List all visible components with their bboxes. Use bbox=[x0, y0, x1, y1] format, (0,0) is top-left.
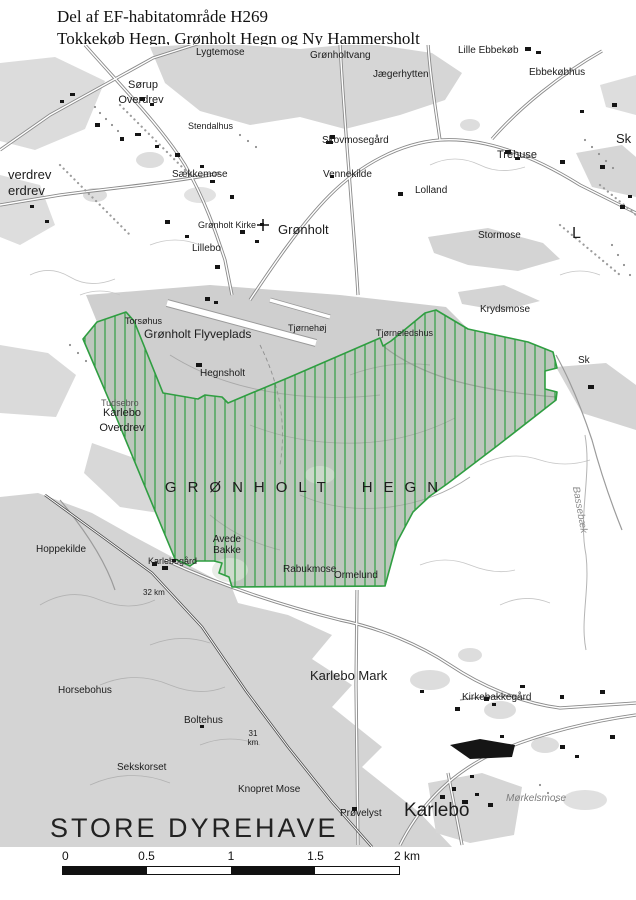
map-label: Karlebo Mark bbox=[310, 669, 387, 682]
map-label: Stendalhus bbox=[188, 122, 233, 131]
scale-bar-segments bbox=[62, 866, 400, 875]
map-label: STORE DYREHAVE bbox=[50, 815, 339, 842]
map-label: Torsøhus bbox=[125, 317, 162, 326]
map-label: Avede bbox=[213, 535, 241, 545]
scale-tick: 1.5 bbox=[307, 849, 324, 863]
map-labels-layer: LygtemoseGrønholtvangLille EbbekøbJægerh… bbox=[0, 45, 636, 847]
map-label: Knopret Mose bbox=[238, 785, 300, 795]
map-label: Hegnsholt bbox=[200, 369, 245, 379]
map-label: Lolland bbox=[415, 186, 447, 196]
map-label: Kirkebakkegård bbox=[462, 693, 531, 703]
map-label: Sk bbox=[616, 132, 631, 145]
map-label: Sækkemose bbox=[172, 170, 228, 180]
map-label: Prøvelyst bbox=[340, 809, 382, 819]
map-label: Rabukmose bbox=[283, 565, 336, 575]
map-label: Overdrev bbox=[99, 423, 144, 434]
map-label: km bbox=[248, 739, 259, 747]
map-label: Tjørneledshus bbox=[376, 329, 433, 338]
map-label: Stormose bbox=[478, 231, 521, 241]
scale-tick: 0.5 bbox=[138, 849, 155, 863]
map-label: Skovmosegård bbox=[322, 136, 389, 146]
map-label: Sk bbox=[578, 356, 590, 366]
map-label: Trehuse bbox=[497, 150, 537, 161]
map-label: Horsebohus bbox=[58, 686, 112, 696]
map-label: Sekskorset bbox=[117, 763, 166, 773]
scale-segment bbox=[63, 867, 147, 874]
map-label: GRØNHOLT HEGN bbox=[165, 480, 449, 495]
map-label: erdrev bbox=[8, 184, 45, 197]
map-label: 31 bbox=[249, 730, 258, 738]
map-label: Lygtemose bbox=[196, 48, 245, 58]
map-label: Bassebæk bbox=[570, 486, 588, 534]
map-label: Grønholt Flyveplads bbox=[144, 328, 251, 340]
map-label: Grønholt bbox=[278, 223, 329, 236]
map-label: Karlebogård bbox=[148, 557, 197, 566]
scale-tick: 2 km bbox=[394, 849, 420, 863]
scale-tick: 1 bbox=[228, 849, 235, 863]
map-label: Lillebo bbox=[192, 244, 221, 254]
map-label: Karlebo bbox=[103, 408, 141, 419]
map-title: Del af EF-habitatområde H269 Tokkekøb He… bbox=[57, 6, 420, 50]
map-label: Mørkelsmose bbox=[506, 794, 566, 804]
map-label: Grønholt Kirke bbox=[198, 221, 256, 230]
scale-segment bbox=[315, 867, 399, 874]
map-area: LygtemoseGrønholtvangLille EbbekøbJægerh… bbox=[0, 45, 636, 847]
scale-bar: 0 0.5 1 1.5 2 km bbox=[62, 849, 400, 879]
scale-tick: 0 bbox=[62, 849, 69, 863]
map-label: Grønholtvang bbox=[310, 51, 371, 61]
map-label: Hoppekilde bbox=[36, 545, 86, 555]
map-label: Bakke bbox=[213, 546, 241, 556]
map-label: Tjørnehøj bbox=[288, 324, 327, 333]
map-label: Jægerhytten bbox=[373, 70, 429, 80]
map-label: Karlebo bbox=[404, 801, 470, 820]
map-label: Vennekilde bbox=[323, 170, 372, 180]
map-label: Ebbekøbhus bbox=[529, 68, 585, 78]
scale-segment bbox=[231, 867, 315, 874]
page: Del af EF-habitatområde H269 Tokkekøb He… bbox=[0, 0, 636, 900]
map-label: Krydsmose bbox=[480, 305, 530, 315]
map-label: Boltehus bbox=[184, 716, 223, 726]
title-line-1: Del af EF-habitatområde H269 bbox=[57, 6, 420, 28]
map-label: Sørup bbox=[128, 80, 158, 91]
map-label: Overdrev bbox=[118, 95, 163, 106]
map-label: Lille Ebbekøb bbox=[458, 46, 519, 56]
map-label: 32 km bbox=[143, 589, 165, 597]
map-label: verdrev bbox=[8, 168, 51, 181]
map-label: L bbox=[572, 226, 581, 242]
scale-segment bbox=[147, 867, 231, 874]
map-label: Ormelund bbox=[334, 571, 378, 581]
